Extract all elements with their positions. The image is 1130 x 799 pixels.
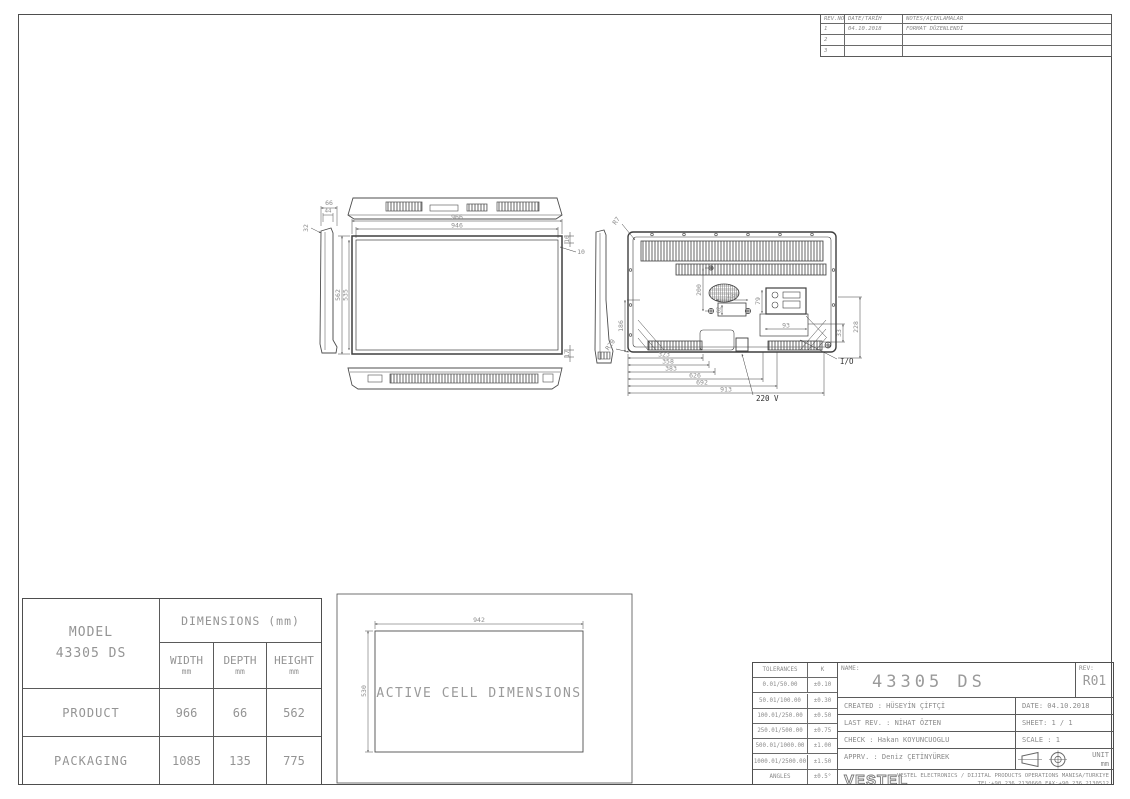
unit-value: mm — [1101, 760, 1109, 768]
row-label: PACKAGING — [23, 737, 160, 784]
dim-side-depth-inner: 44 — [325, 209, 332, 215]
dim-bezel-bottom: 17 — [563, 350, 571, 358]
dim-rear-vesa-v: 200 — [695, 284, 703, 296]
rev-cell-no: 2 — [821, 35, 845, 46]
dim-rear-right-h: 228 — [852, 321, 860, 333]
packaging-height: 775 — [267, 737, 321, 784]
projection-symbol-icon — [1018, 749, 1076, 769]
dim-rear-vesa-inner: 62 — [717, 307, 723, 314]
dim-bezel-top: 10 — [563, 235, 571, 243]
tol-header-k: K — [808, 663, 837, 678]
rev-cell-no: 3 — [821, 46, 845, 56]
dim-rear-right-offset: 33 — [835, 329, 843, 337]
company-line2: TEL:+90.236.2130660 FAX:+90.236.2130512 — [978, 781, 1109, 784]
dimensions-table: MODEL 43305 DS DIMENSIONS (mm) WIDTHmm D… — [22, 598, 322, 785]
title-block: TOLERANCES K 0.01/50.00 ±0.10 50.01/100.… — [752, 662, 1114, 785]
model-cell: MODEL 43305 DS — [23, 599, 160, 689]
io-label: I/O — [840, 357, 854, 366]
rev-cell-date: 04.10.2018 — [845, 24, 903, 35]
unit-box: UNIT mm — [1092, 751, 1109, 769]
tol-value: ±0.10 — [808, 678, 837, 693]
date-text: DATE: 04.10.2018 — [1022, 702, 1089, 710]
check-cell: CHECK : Hakan KOYUNCUOGLU — [837, 731, 1015, 748]
name-label: NAME: — [841, 665, 860, 672]
tol-range: ANGLES — [753, 770, 808, 784]
dim-rear-chain-5: 692 — [696, 379, 708, 387]
date-cell: DATE: 04.10.2018 — [1015, 697, 1113, 714]
apprv-text: APPRV. : Deniz ÇETİNYÜREK — [844, 753, 949, 761]
dim-front-width: 966 — [451, 213, 463, 221]
company-info: VESTEL ELECTRONICS / DIJITAL PRODUCTS OP… — [897, 772, 1109, 784]
dim-bezel-side: 10 — [577, 248, 585, 256]
rev-value: R01 — [1076, 674, 1113, 689]
product-height: 562 — [267, 689, 321, 737]
packaging-depth: 135 — [214, 737, 267, 784]
sheet-text: SHEET: 1 / 1 — [1022, 719, 1073, 727]
dim-front-width-inner: 946 — [451, 222, 463, 230]
rev-cell-note: FORMAT DÜZENLENDİ — [903, 24, 1111, 35]
product-depth: 66 — [214, 689, 267, 737]
rev-cell-no: 1 — [821, 24, 845, 35]
tol-range: 1000.01/2500.00 — [753, 755, 808, 770]
dim-rear-radius-top: R7 — [611, 215, 622, 226]
dim-side-depth-top: 32 — [302, 224, 310, 232]
rev-cell-note — [903, 35, 1111, 46]
scale-cell: SCALE : 1 — [1015, 731, 1113, 748]
model-label: MODEL — [69, 623, 113, 644]
active-cell-label: ACTIVE CELL DIMENSIONS — [376, 686, 581, 701]
tol-value: ±0.5° — [808, 770, 837, 784]
tol-value: ±0.50 — [808, 709, 837, 724]
tol-range: 0.01/50.00 — [753, 678, 808, 693]
drawing-name: 43305 DS — [872, 672, 986, 692]
unit-label: UNIT — [1092, 751, 1109, 759]
rev-col-header: REV.NO — [821, 15, 845, 24]
check-text: CHECK : Hakan KOYUNCUOGLU — [844, 736, 949, 744]
rev-cell-date — [845, 46, 903, 56]
tol-header: TOLERANCES — [753, 663, 808, 678]
dim-rear-io-h: 79 — [754, 297, 762, 305]
tol-value: ±1.50 — [808, 755, 837, 770]
company-line1: VESTEL ELECTRONICS / DIJITAL PRODUCTS OP… — [897, 773, 1109, 779]
rear-view: 200 130 62 79 93 186 228 33 R7 R20 323 3… — [604, 215, 862, 403]
rev-col-header: NOTES/AÇIKLAMALAR — [903, 15, 1111, 24]
dim-rear-left-h: 186 — [617, 320, 625, 332]
drawing-sheet: 66 44 32 966 946 5 — [0, 0, 1130, 799]
unit-cell: UNIT mm — [1015, 748, 1113, 769]
front-view: 966 946 562 535 10 10 17 — [334, 213, 585, 362]
row-label: PRODUCT — [23, 689, 160, 737]
tol-value: ±0.30 — [808, 694, 837, 709]
col-header-depth: DEPTHmm — [214, 643, 267, 689]
side-view-left: 66 44 32 — [302, 199, 337, 353]
dims-header: DIMENSIONS (mm) — [160, 599, 321, 643]
tolerances-table: TOLERANCES K 0.01/50.00 ±0.10 50.01/100.… — [753, 663, 837, 784]
rev-label: REV: — [1079, 665, 1094, 672]
rev-cell: REV: R01 — [1075, 663, 1113, 697]
tol-range: 250.01/500.00 — [753, 724, 808, 739]
tol-value: ±0.75 — [808, 724, 837, 739]
tol-range: 500.01/1000.00 — [753, 739, 808, 754]
lastrev-cell: LAST REV. : NİHAT ÖZTEN — [837, 714, 1015, 731]
tol-range: 100.01/250.00 — [753, 709, 808, 724]
active-cell-view: 942 530 ACTIVE CELL DIMENSIONS — [337, 594, 632, 783]
rev-col-header: DATE/TARİH — [845, 15, 903, 24]
power-label: 220 V — [756, 394, 779, 403]
revision-table: REV.NO DATE/TARİH NOTES/AÇIKLAMALAR 1 04… — [820, 14, 1112, 57]
dim-side-depth: 66 — [325, 199, 333, 207]
tol-range: 50.01/100.00 — [753, 694, 808, 709]
bottom-view — [348, 368, 562, 389]
sheet-cell: SHEET: 1 / 1 — [1015, 714, 1113, 731]
scale-text: SCALE : 1 — [1022, 736, 1060, 744]
dim-rear-radius-bottom: R20 — [604, 338, 617, 352]
packaging-width: 1085 — [160, 737, 214, 784]
rev-cell-date — [845, 35, 903, 46]
brand-cell: VESTEL VESTEL ELECTRONICS / DIJITAL PROD… — [837, 769, 1113, 784]
name-cell: NAME: 43305 DS — [837, 663, 1075, 697]
model-value: 43305 DS — [56, 644, 127, 665]
lastrev-text: LAST REV. : NİHAT ÖZTEN — [844, 719, 941, 727]
dim-front-height-inner: 535 — [342, 289, 350, 301]
dim-rear-chain-6: 913 — [720, 386, 732, 394]
created-text: CREATED : HÜSEYİN ÇİFTÇİ — [844, 702, 945, 710]
created-cell: CREATED : HÜSEYİN ÇİFTÇİ — [837, 697, 1015, 714]
apprv-cell: APPRV. : Deniz ÇETİNYÜREK — [837, 748, 1015, 769]
col-header-width: WIDTHmm — [160, 643, 214, 689]
dim-cell-width: 942 — [473, 616, 485, 624]
product-width: 966 — [160, 689, 214, 737]
rev-cell-note — [903, 46, 1111, 56]
tol-value: ±1.00 — [808, 739, 837, 754]
dim-rear-vesa-h: 130 — [726, 292, 738, 300]
dim-cell-height: 530 — [360, 685, 368, 697]
col-header-height: HEIGHTmm — [267, 643, 321, 689]
dim-rear-chain-3: 383 — [665, 365, 677, 373]
dim-rear-io-w: 93 — [782, 322, 790, 330]
